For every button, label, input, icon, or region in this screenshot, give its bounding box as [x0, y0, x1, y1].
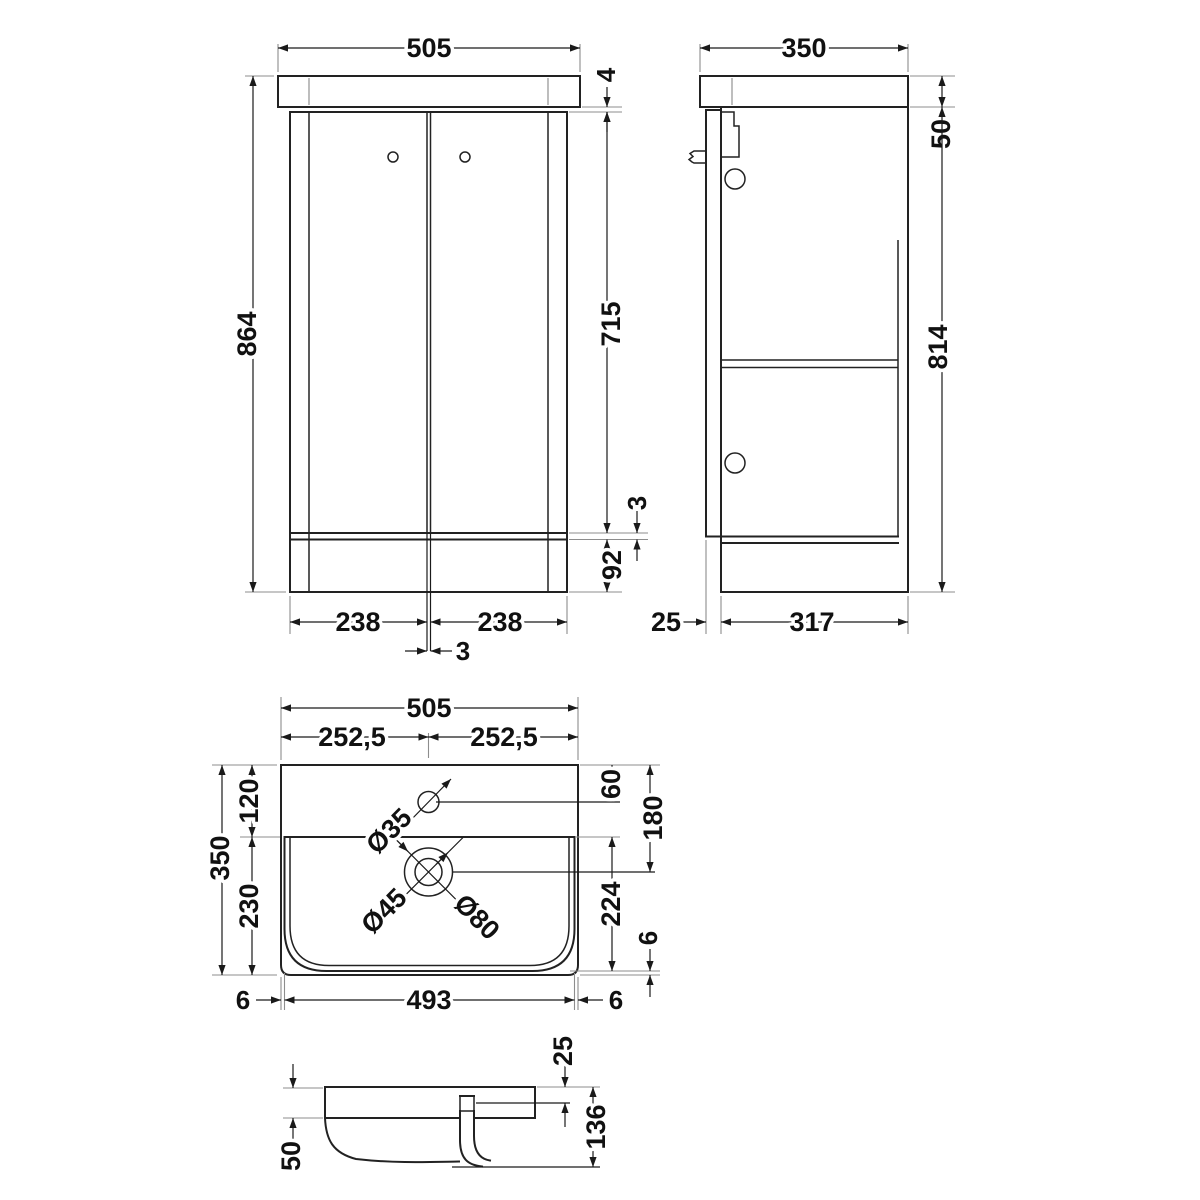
dim-front-bottom-gap: 3 [622, 496, 652, 510]
dim-basin-overall-width: 505 [406, 693, 451, 723]
dim-side-body-depth: 317 [789, 607, 834, 637]
dim-basin-left-half: 252,5 [318, 722, 386, 752]
dim-side-door-thickness: 25 [651, 607, 681, 637]
dim-basin-front-gap: 6 [633, 931, 663, 945]
dim-basin-bowl-width: 493 [406, 985, 451, 1015]
dim-basin-left-rim: 6 [236, 985, 250, 1015]
technical-drawing-page: 505 864 4 715 3 92 238 238 3 [0, 0, 1200, 1200]
dim-side-overall-depth: 350 [781, 33, 826, 63]
dim-front-door-height: 715 [596, 301, 626, 346]
dim-side-cabinet-height: 814 [923, 324, 953, 369]
dim-basin-bowl-zone: 230 [234, 883, 264, 928]
paper-background [0, 0, 1200, 1200]
dim-basin-right-half: 252,5 [470, 722, 538, 752]
dim-front-plinth-height: 92 [597, 550, 627, 580]
dim-front-overall-width: 505 [406, 33, 451, 63]
dim-front-worktop-gap: 4 [591, 67, 621, 82]
dim-front-door-gap: 3 [456, 636, 470, 666]
dim-section-overall-height: 136 [581, 1104, 611, 1149]
dim-front-right-door-width: 238 [477, 607, 522, 637]
dim-basin-overall-depth: 350 [205, 835, 235, 880]
dim-basin-right-rim: 6 [609, 985, 623, 1015]
dim-basin-bowl-inner: 224 [596, 881, 626, 926]
vanity-technical-drawing: 505 864 4 715 3 92 238 238 3 [0, 0, 1200, 1200]
dim-section-rim-height: 50 [276, 1141, 306, 1171]
dim-front-overall-height: 864 [232, 311, 262, 356]
dim-basin-tap-offset: 60 [596, 769, 626, 799]
dim-section-waste-recess: 25 [548, 1036, 578, 1066]
dim-side-worktop-height: 50 [926, 119, 956, 149]
dim-basin-waste-offset: 180 [638, 795, 668, 840]
dim-front-left-door-width: 238 [335, 607, 380, 637]
dim-basin-rear-ledge: 120 [234, 778, 264, 823]
